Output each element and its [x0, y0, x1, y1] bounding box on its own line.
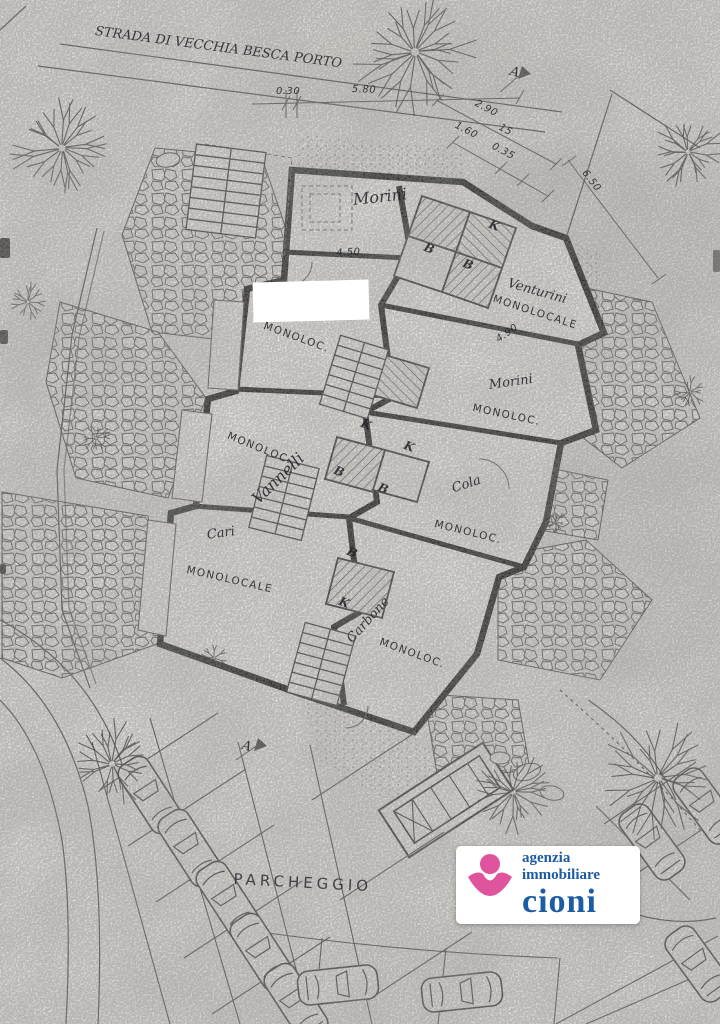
- agency-logo-text: agenzia immobiliare cioni: [522, 850, 600, 921]
- scanned-site-plan: STRADA DI VECCHIA BESCA PORTO0.305.802.9…: [0, 0, 720, 1024]
- agency-logo-figure-icon: [464, 853, 516, 917]
- agency-logo-line2: immobiliare: [522, 867, 600, 884]
- agency-logo: agenzia immobiliare cioni: [456, 846, 640, 924]
- agency-logo-line3: cioni: [522, 883, 600, 921]
- agency-logo-line1: agenzia: [522, 850, 600, 867]
- redaction-box: [252, 279, 369, 322]
